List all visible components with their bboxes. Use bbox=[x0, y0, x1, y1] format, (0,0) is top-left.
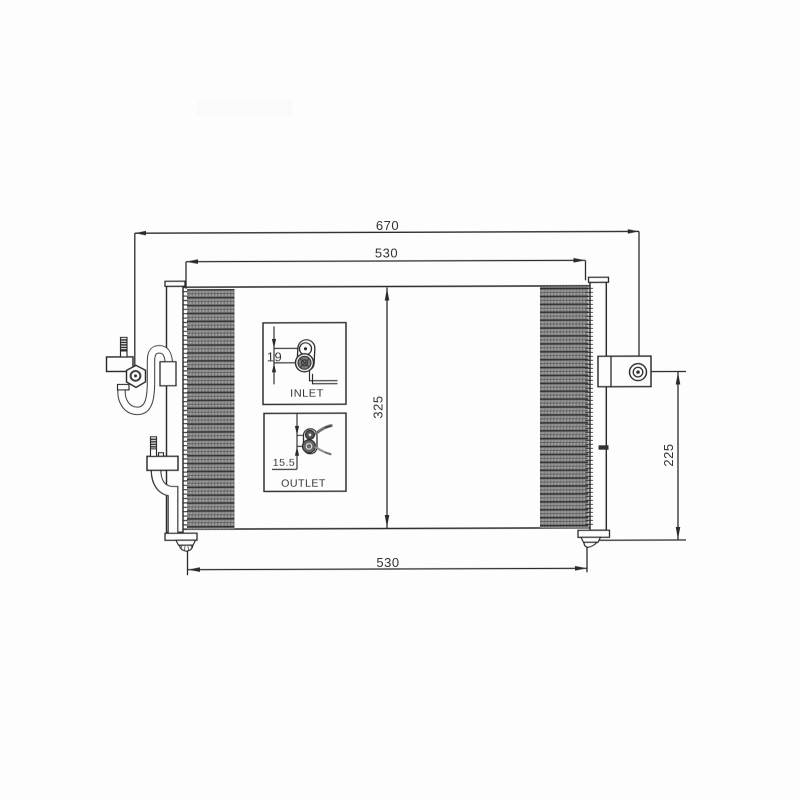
svg-text:325: 325 bbox=[371, 395, 386, 418]
svg-text:530: 530 bbox=[375, 245, 398, 260]
svg-text:OUTLET: OUTLET bbox=[281, 478, 326, 490]
svg-text:19: 19 bbox=[267, 349, 282, 364]
svg-text:225: 225 bbox=[661, 443, 676, 466]
svg-text:15.5: 15.5 bbox=[273, 457, 295, 469]
svg-text:INLET: INLET bbox=[290, 388, 324, 400]
svg-text:670: 670 bbox=[376, 218, 399, 233]
svg-text:530: 530 bbox=[376, 555, 399, 570]
